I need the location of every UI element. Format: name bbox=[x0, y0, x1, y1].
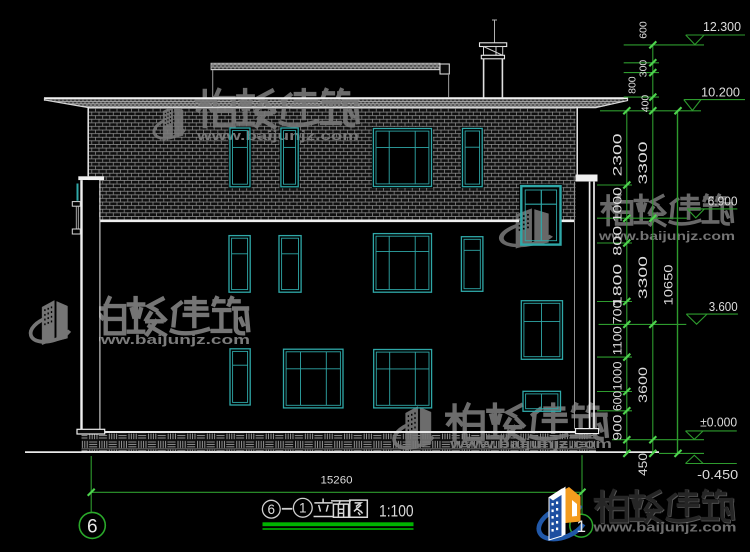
svg-text:800: 800 bbox=[627, 76, 639, 94]
svg-text:450: 450 bbox=[636, 453, 650, 476]
svg-text:3600: 3600 bbox=[636, 367, 650, 403]
svg-text:1100: 1100 bbox=[611, 326, 625, 355]
svg-text:600: 600 bbox=[637, 21, 649, 39]
svg-text:1000: 1000 bbox=[611, 187, 625, 222]
svg-text:www.baijunjz.com: www.baijunjz.com bbox=[85, 332, 250, 347]
svg-text:800: 800 bbox=[611, 225, 625, 255]
svg-text:900: 900 bbox=[611, 414, 625, 440]
svg-text:300: 300 bbox=[638, 60, 650, 78]
svg-text:12.300: 12.300 bbox=[703, 19, 741, 34]
svg-text:3300: 3300 bbox=[636, 141, 650, 185]
svg-text:6: 6 bbox=[268, 502, 276, 517]
svg-text:6: 6 bbox=[87, 516, 98, 537]
svg-text:6.900: 6.900 bbox=[708, 193, 738, 208]
svg-text:2300: 2300 bbox=[611, 133, 625, 177]
svg-text:www.baijunjz.com: www.baijunjz.com bbox=[592, 521, 736, 535]
svg-text:3300: 3300 bbox=[636, 256, 650, 300]
svg-text:10.200: 10.200 bbox=[701, 85, 740, 100]
svg-text:www.baijunjz.com: www.baijunjz.com bbox=[449, 436, 612, 451]
svg-text:700: 700 bbox=[611, 300, 625, 324]
svg-text:400: 400 bbox=[640, 95, 652, 113]
svg-text:1000: 1000 bbox=[611, 361, 625, 390]
svg-text:-0.450: -0.450 bbox=[697, 467, 738, 482]
svg-text:600: 600 bbox=[611, 391, 625, 411]
svg-text:1:100: 1:100 bbox=[379, 502, 414, 521]
svg-text:15260: 15260 bbox=[321, 475, 353, 487]
svg-text:1800: 1800 bbox=[611, 263, 625, 307]
svg-text:10650: 10650 bbox=[662, 264, 676, 305]
svg-text:±0.000: ±0.000 bbox=[700, 415, 737, 430]
svg-text:www.baijunjz.com: www.baijunjz.com bbox=[196, 128, 359, 143]
svg-text:1: 1 bbox=[299, 501, 307, 516]
svg-text:1: 1 bbox=[576, 517, 585, 536]
svg-text:3.600: 3.600 bbox=[709, 299, 738, 314]
